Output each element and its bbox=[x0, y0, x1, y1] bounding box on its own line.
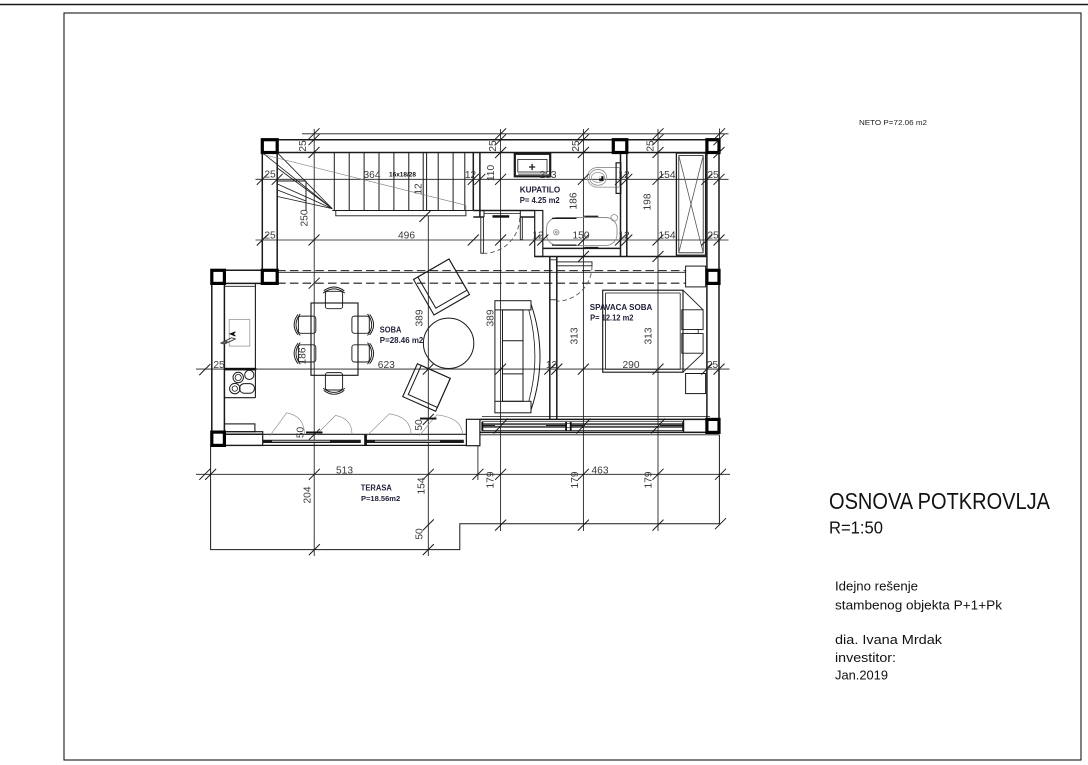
svg-text:P= 12.12 m2: P= 12.12 m2 bbox=[590, 313, 634, 322]
svg-text:12: 12 bbox=[546, 360, 558, 371]
svg-text:364: 364 bbox=[364, 170, 381, 181]
svg-text:50: 50 bbox=[296, 427, 307, 439]
svg-text:12: 12 bbox=[465, 170, 477, 181]
svg-text:290: 290 bbox=[623, 360, 640, 371]
svg-text:R=1:50: R=1:50 bbox=[829, 518, 883, 538]
svg-text:50: 50 bbox=[414, 419, 425, 431]
svg-text:25: 25 bbox=[213, 360, 225, 371]
svg-text:12: 12 bbox=[618, 170, 630, 181]
svg-text:179: 179 bbox=[486, 471, 497, 488]
svg-text:P= 4.25 m2: P= 4.25 m2 bbox=[520, 196, 560, 205]
svg-text:513: 513 bbox=[336, 465, 353, 476]
svg-text:25: 25 bbox=[707, 360, 719, 371]
svg-text:SPAVACA SOBA: SPAVACA SOBA bbox=[590, 302, 653, 312]
svg-text:250: 250 bbox=[300, 209, 311, 226]
svg-text:389: 389 bbox=[415, 309, 426, 326]
svg-text:25: 25 bbox=[264, 230, 276, 241]
svg-text:dia. Ivana Mrdak: dia. Ivana Mrdak bbox=[835, 633, 943, 647]
svg-text:25: 25 bbox=[264, 169, 276, 180]
svg-text:12: 12 bbox=[618, 231, 630, 242]
svg-text:P=18.56m2: P=18.56m2 bbox=[361, 494, 400, 503]
svg-text:NETO P=72.06 m2: NETO P=72.06 m2 bbox=[859, 118, 927, 127]
svg-text:204: 204 bbox=[303, 486, 314, 503]
svg-text:389: 389 bbox=[486, 309, 497, 326]
svg-text:154: 154 bbox=[417, 477, 428, 494]
svg-text:SOBA: SOBA bbox=[380, 325, 402, 335]
svg-text:25: 25 bbox=[646, 140, 657, 152]
svg-text:25: 25 bbox=[488, 140, 499, 152]
svg-text:179: 179 bbox=[570, 471, 581, 488]
svg-text:25: 25 bbox=[707, 170, 719, 181]
svg-text:283: 283 bbox=[540, 170, 557, 181]
svg-text:179: 179 bbox=[644, 471, 655, 488]
svg-text:12: 12 bbox=[414, 183, 425, 195]
svg-text:25: 25 bbox=[707, 231, 719, 242]
svg-text:50: 50 bbox=[415, 528, 426, 540]
svg-text:Idejno rešenje: Idejno rešenje bbox=[835, 580, 918, 594]
svg-text:KUPATILO: KUPATILO bbox=[520, 185, 561, 195]
svg-text:25: 25 bbox=[571, 140, 582, 152]
svg-text:12: 12 bbox=[532, 231, 544, 242]
svg-text:154: 154 bbox=[659, 170, 676, 181]
svg-text:623: 623 bbox=[378, 360, 395, 371]
svg-text:TERASA: TERASA bbox=[361, 484, 392, 493]
svg-text:313: 313 bbox=[644, 327, 655, 344]
svg-text:186: 186 bbox=[298, 347, 309, 364]
svg-text:496: 496 bbox=[398, 231, 415, 242]
svg-text:150: 150 bbox=[573, 231, 590, 242]
svg-text:Jan.2019: Jan.2019 bbox=[835, 669, 888, 683]
svg-text:investitor:: investitor: bbox=[835, 651, 896, 665]
svg-text:stambenog objekta P+1+Pk: stambenog objekta P+1+Pk bbox=[835, 599, 1003, 613]
svg-text:16x18/28: 16x18/28 bbox=[389, 172, 416, 179]
svg-text:154: 154 bbox=[659, 231, 676, 242]
svg-text:P=28.46 m2: P=28.46 m2 bbox=[380, 336, 424, 345]
svg-text:OSNOVA POTKROVLJA: OSNOVA POTKROVLJA bbox=[829, 488, 1050, 514]
svg-text:313: 313 bbox=[570, 327, 581, 344]
svg-text:186: 186 bbox=[568, 192, 579, 209]
svg-text:198: 198 bbox=[643, 193, 654, 210]
svg-text:25: 25 bbox=[298, 140, 309, 152]
svg-text:110: 110 bbox=[486, 165, 497, 182]
svg-text:463: 463 bbox=[592, 465, 609, 476]
